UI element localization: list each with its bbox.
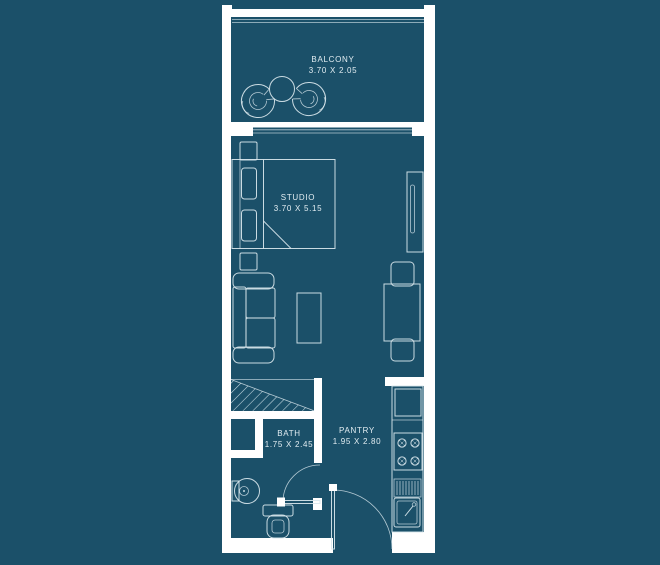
wall-bath-top <box>222 411 322 419</box>
wall-balcony-stub-left <box>222 122 253 136</box>
studio-label: STUDIO <box>281 193 315 202</box>
balcony-label: BALCONY <box>311 55 354 64</box>
pantry-label: PANTRY <box>339 426 375 435</box>
floorplan-page: BALCONY 3.70 X 2.05 STUDIO 3.70 X 5.15 B… <box>0 0 660 565</box>
studio-dimensions: 3.70 X 5.15 <box>274 204 323 213</box>
floorplan-canvas: BALCONY 3.70 X 2.05 STUDIO 3.70 X 5.15 B… <box>0 0 660 565</box>
wall-pantry-top <box>385 377 424 386</box>
wall-balcony-stub-right <box>412 122 435 136</box>
background <box>0 0 660 565</box>
wall-balcony-lintel <box>253 122 412 128</box>
wall-bottom-right-block <box>392 532 435 553</box>
balcony-dimensions: 3.70 X 2.05 <box>309 66 358 75</box>
wall-left <box>222 9 231 553</box>
pantry-dimensions: 1.95 X 2.80 <box>333 437 382 446</box>
wall-right <box>424 9 435 553</box>
wall-top <box>222 9 435 17</box>
bath-dimensions: 1.75 X 2.45 <box>265 440 314 449</box>
wall-shaft-bath-divider <box>314 378 322 463</box>
wall-bottom-left <box>222 538 333 553</box>
wall-notch-bottom <box>222 450 263 458</box>
bath-label: BATH <box>277 429 301 438</box>
